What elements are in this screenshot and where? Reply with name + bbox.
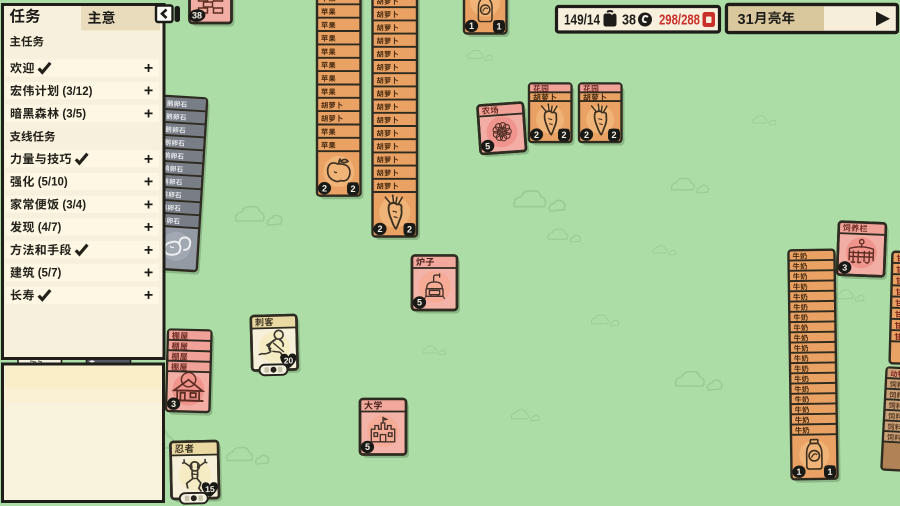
- svg-text:38: 38: [192, 11, 202, 21]
- svg-text:2: 2: [584, 130, 589, 140]
- svg-text:2: 2: [377, 224, 382, 234]
- svg-text:5: 5: [365, 442, 370, 452]
- svg-text:+: +: [144, 265, 153, 282]
- svg-text:+: +: [144, 242, 153, 259]
- svg-text:(3/12): (3/12): [62, 86, 92, 98]
- svg-text:+: +: [144, 196, 153, 213]
- svg-text:(5/10): (5/10): [38, 177, 68, 189]
- svg-text:15: 15: [205, 484, 215, 494]
- svg-text:2: 2: [350, 184, 355, 194]
- svg-text:(5/7): (5/7): [38, 268, 62, 280]
- svg-text:5: 5: [485, 141, 491, 151]
- svg-text:+: +: [144, 60, 153, 77]
- svg-text:298/288: 298/288: [659, 13, 700, 29]
- svg-text:2: 2: [561, 130, 566, 140]
- svg-text:2: 2: [407, 225, 412, 235]
- svg-text:+: +: [144, 219, 153, 236]
- svg-text:+: +: [144, 151, 153, 168]
- svg-text:+: +: [144, 83, 153, 100]
- svg-text:1: 1: [796, 467, 801, 477]
- svg-text:+: +: [144, 174, 153, 191]
- svg-text:149/14: 149/14: [564, 13, 600, 29]
- svg-text:1: 1: [469, 21, 474, 31]
- svg-text:31: 31: [738, 12, 754, 28]
- svg-text:5: 5: [417, 298, 422, 308]
- svg-text:1: 1: [827, 467, 832, 477]
- svg-text:+: +: [144, 287, 153, 304]
- svg-text:2: 2: [322, 183, 327, 193]
- svg-text:(3/4): (3/4): [62, 200, 86, 212]
- svg-text:1: 1: [496, 22, 501, 32]
- svg-text:2: 2: [534, 130, 539, 140]
- svg-text:2: 2: [611, 130, 616, 140]
- svg-text:38: 38: [622, 13, 636, 29]
- svg-text:+: +: [144, 105, 153, 122]
- svg-text:3: 3: [842, 262, 847, 272]
- svg-text:(4/7): (4/7): [38, 222, 62, 234]
- svg-text:3: 3: [171, 399, 176, 409]
- svg-text:(3/5): (3/5): [62, 109, 86, 121]
